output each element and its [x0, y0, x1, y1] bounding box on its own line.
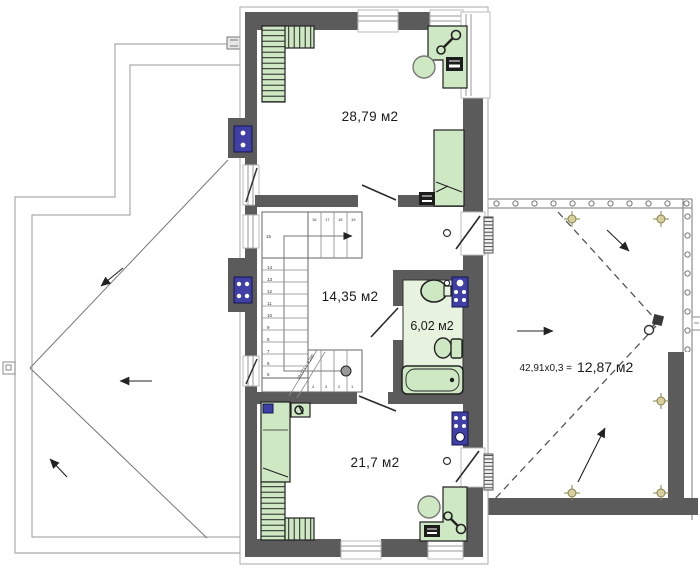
window-icon	[243, 356, 259, 386]
stair-number: 10	[267, 313, 273, 318]
slope-arrow-icon	[607, 230, 629, 251]
toilet-icon	[435, 338, 463, 358]
building: 19x173 = 3,290 15 14 13 12 11 10 9 8 7 6…	[228, 7, 493, 564]
room-area-label: 14,35 м2	[322, 289, 379, 304]
bed-icon	[261, 402, 290, 482]
floor-plan-drawing: 42,91x0,3 = 12,87 м2	[0, 0, 700, 575]
bed-icon	[434, 130, 464, 206]
stair-number: 16	[312, 217, 317, 222]
chair-icon	[413, 56, 435, 78]
roof-post-marker	[653, 393, 669, 409]
roof-valley-line	[30, 368, 207, 538]
stair-number: 14	[267, 265, 273, 270]
terrace-wall	[668, 352, 684, 498]
railing-icon	[680, 210, 693, 352]
computer-icon	[424, 525, 440, 537]
stair-number: 6	[267, 361, 270, 366]
stair-number: 19	[351, 217, 356, 222]
stair-number: 11	[267, 301, 272, 306]
pillow	[263, 404, 273, 413]
bathroom-fixtures	[402, 277, 468, 394]
terrace: 42,91x0,3 = 12,87 м2	[485, 197, 700, 520]
stair-number: 17	[325, 217, 330, 222]
roof-post-marker	[564, 211, 580, 227]
window-icon	[428, 541, 463, 559]
stair-start-post	[341, 366, 351, 376]
roof-ridge-dashed	[492, 326, 656, 502]
terrace-wall	[485, 498, 698, 515]
slope-arrow-icon	[578, 428, 605, 482]
terrace-area-label: 42,91x0,3 =	[519, 363, 572, 374]
room-area-label: 28,79 м2	[342, 109, 399, 124]
threshold	[484, 217, 493, 253]
threshold	[484, 454, 493, 490]
window-icon	[358, 10, 398, 32]
roof-drain-icon	[645, 314, 665, 335]
slope-arrow-icon	[50, 459, 67, 477]
window-icon	[243, 215, 259, 248]
slope-arrow-icon	[101, 268, 123, 286]
stair-number: 8	[267, 337, 270, 342]
roof-valley-line	[30, 160, 228, 368]
chair-icon	[418, 496, 440, 518]
roof-outline-inner	[32, 65, 245, 537]
window-icon	[341, 541, 381, 559]
roof-post-marker	[653, 211, 669, 227]
stair-number: 13	[267, 277, 273, 282]
terrace-area-label: 12,87 м2	[577, 359, 634, 375]
stair-number: 9	[267, 325, 270, 330]
roof-drain-icon	[3, 362, 15, 374]
washing-machine-icon	[452, 277, 468, 307]
computer-icon	[446, 57, 463, 71]
stair-number: 12	[267, 289, 273, 294]
floor-plan: 42,91x0,3 = 12,87 м2	[0, 0, 700, 575]
bathtub-icon	[402, 366, 463, 394]
roof-left	[3, 37, 245, 553]
vent-block-icon	[234, 277, 252, 303]
room-area-label: 21,7 м2	[351, 455, 400, 470]
stair-number: 18	[338, 217, 343, 222]
room-area-label: 6,02 м2	[410, 319, 453, 333]
stair-number: 15	[266, 234, 272, 239]
vent-block-icon	[234, 126, 252, 152]
stair-number: 7	[267, 349, 270, 354]
wall-bracket	[692, 317, 700, 330]
roof-ridge-dashed	[558, 212, 656, 320]
tv-icon	[419, 192, 435, 205]
roof-vent-fitting	[227, 37, 241, 49]
lamp-icon	[291, 403, 310, 417]
stair-number: 5	[267, 372, 270, 377]
boiler-icon	[452, 412, 468, 445]
